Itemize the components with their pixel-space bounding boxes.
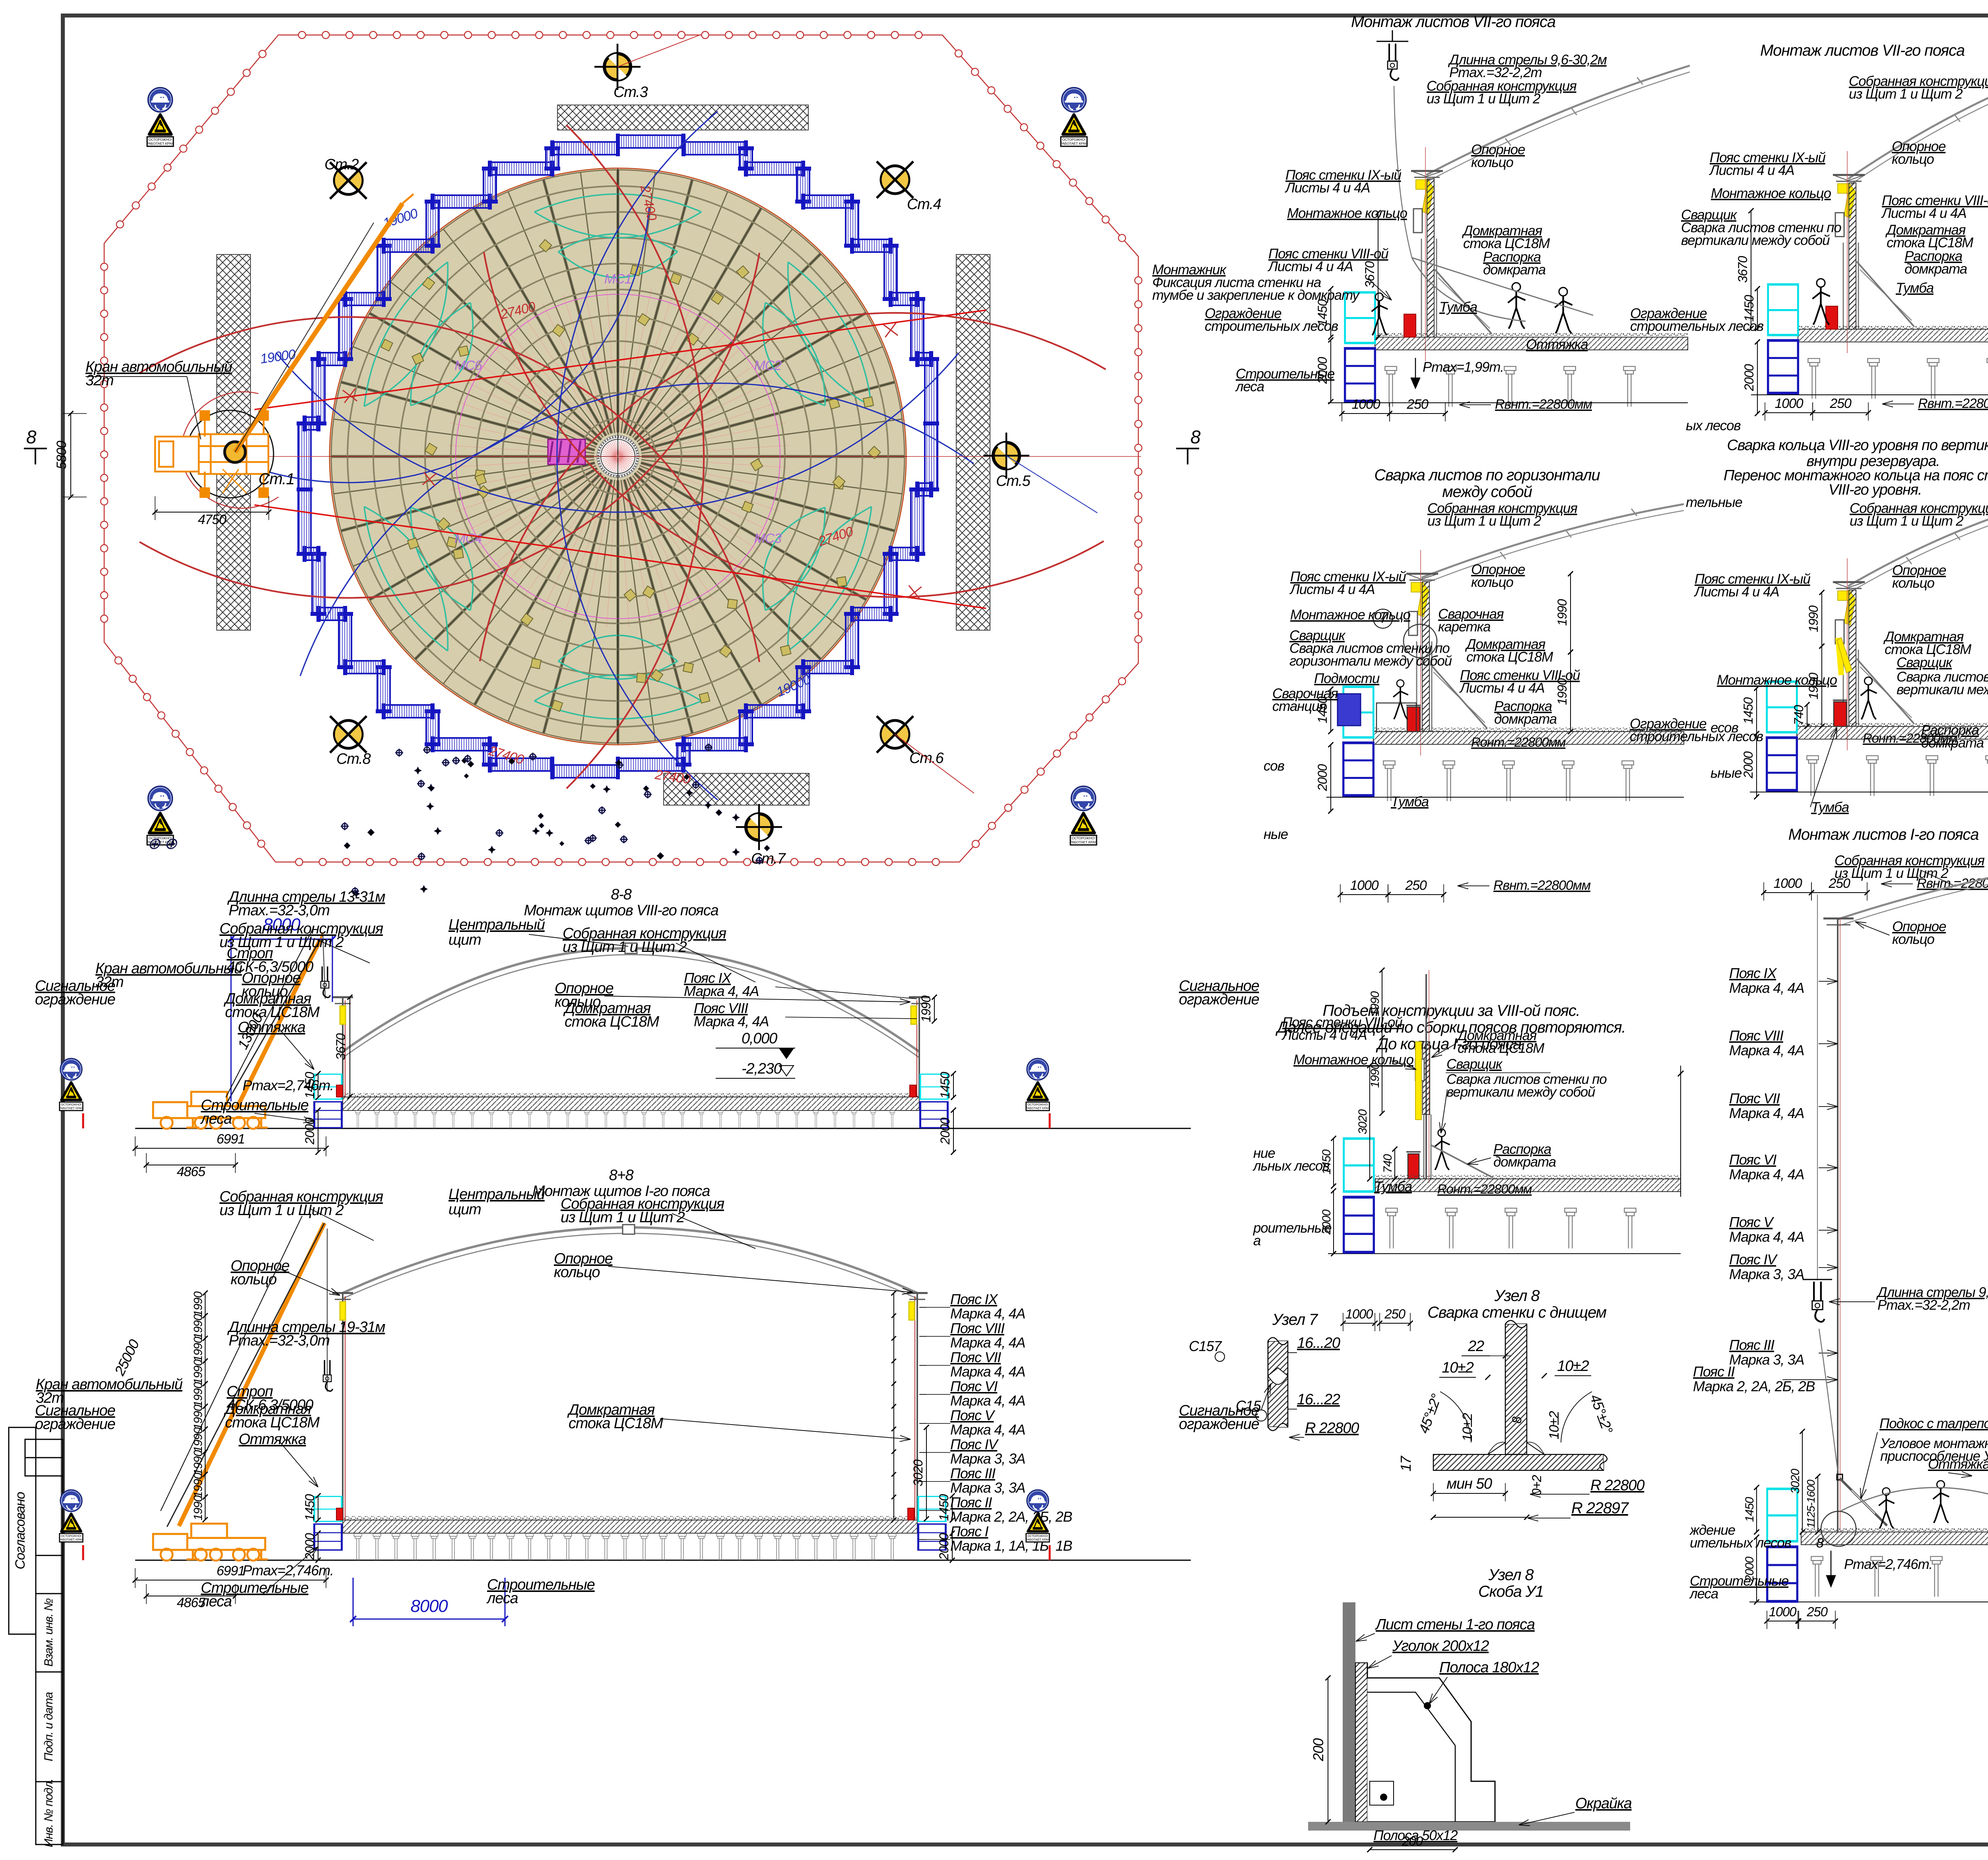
- svg-text:Pmax=2,746m.: Pmax=2,746m.: [243, 1077, 334, 1093]
- svg-text:домкрата: домкрата: [1493, 1154, 1556, 1170]
- svg-text:Лист стены 1-го пояса: Лист стены 1-го пояса: [1375, 1616, 1535, 1633]
- svg-text:есов: есов: [1710, 720, 1738, 736]
- svg-text:Сварка кольца VIII-го уровня п: Сварка кольца VIII-го уровня по вертикал…: [1727, 437, 1988, 454]
- svg-text:а: а: [1253, 1233, 1261, 1248]
- svg-text:Листы 4 и 4А: Листы 4 и 4А: [1459, 680, 1544, 696]
- svg-text:1450: 1450: [938, 1072, 952, 1099]
- svg-text:2000: 2000: [1315, 764, 1330, 791]
- svg-text:1990: 1990: [919, 995, 933, 1022]
- svg-text:1990: 1990: [192, 1359, 205, 1384]
- svg-text:7: 7: [1380, 610, 1389, 626]
- svg-text:Подп. и дата: Подп. и дата: [42, 1692, 55, 1761]
- svg-text:МС3: МС3: [754, 531, 782, 546]
- svg-text:Согласовано: Согласовано: [13, 1492, 28, 1569]
- svg-text:Листы 4 и 4А: Листы 4 и 4А: [1268, 259, 1353, 274]
- svg-text:Монтаж листов VII-го пояса: Монтаж листов VII-го пояса: [1351, 13, 1555, 31]
- svg-text:сов: сов: [1264, 758, 1285, 774]
- svg-text:4865: 4865: [177, 1164, 206, 1179]
- svg-text:леса: леса: [1689, 1586, 1718, 1602]
- svg-text:Марка 4, 4А: Марка 4, 4А: [950, 1421, 1025, 1438]
- svg-text:250: 250: [1829, 396, 1851, 411]
- svg-text:вертикали между собой: вертикали между собой: [1897, 682, 1988, 697]
- svg-text:8: 8: [1510, 1416, 1524, 1423]
- svg-text:⊕ ⊕: ⊕ ⊕: [147, 835, 177, 852]
- svg-text:из Щит 1 и Щит 2: из Щит 1 и Щит 2: [1427, 91, 1540, 107]
- svg-text:льных лесов: льных лесов: [1252, 1158, 1330, 1174]
- svg-text:Скоба У1: Скоба У1: [1478, 1583, 1543, 1600]
- svg-text:Пояс V: Пояс V: [1729, 1214, 1774, 1230]
- svg-text:10±2: 10±2: [1547, 1411, 1562, 1439]
- svg-text:Марка 4, 4А: Марка 4, 4А: [1729, 1166, 1804, 1182]
- svg-text:1000: 1000: [1345, 1307, 1373, 1321]
- svg-text:1450: 1450: [1320, 1149, 1333, 1175]
- svg-text:Листы 4 и 4А: Листы 4 и 4А: [1881, 206, 1966, 221]
- svg-text:Rвнт.=22800мм: Rвнт.=22800мм: [1918, 396, 1988, 411]
- svg-text:Пояс IV: Пояс IV: [1729, 1251, 1778, 1268]
- svg-text:строительных лесов: строительных лесов: [1630, 729, 1763, 744]
- svg-text:Пояс VI: Пояс VI: [950, 1378, 998, 1394]
- svg-text:кольцо: кольцо: [1892, 932, 1934, 947]
- svg-text:1450: 1450: [1742, 295, 1756, 322]
- svg-text:200: 200: [1310, 1738, 1326, 1762]
- svg-text:каретка: каретка: [1438, 619, 1491, 635]
- svg-text:Монтаж листов I-го пояса: Монтаж листов I-го пояса: [1788, 826, 1979, 843]
- svg-text:Полоса 180х12: Полоса 180х12: [1439, 1659, 1539, 1676]
- svg-text:R 22800: R 22800: [1305, 1420, 1359, 1437]
- svg-text:Пояс III: Пояс III: [1729, 1337, 1774, 1353]
- svg-text:8: 8: [1190, 427, 1201, 447]
- svg-text:Уголок 200х12: Уголок 200х12: [1392, 1638, 1489, 1654]
- svg-text:Сварщик: Сварщик: [1897, 655, 1953, 670]
- svg-text:кольцо: кольцо: [231, 1271, 276, 1288]
- svg-text:домкрата: домкрата: [1483, 262, 1546, 278]
- svg-text:8: 8: [26, 427, 37, 447]
- svg-text:Монтаж щитов VIII-го пояса: Монтаж щитов VIII-го пояса: [524, 902, 718, 919]
- svg-text:Pmax=2,746m.: Pmax=2,746m.: [1844, 1557, 1932, 1572]
- svg-text:из Щит 1 и Щит 2: из Щит 1 и Щит 2: [1849, 86, 1963, 102]
- svg-text:Марка 4, 4А: Марка 4, 4А: [1729, 1042, 1804, 1058]
- svg-text:1990: 1990: [1369, 1063, 1382, 1088]
- svg-text:Марка 4, 4А: Марка 4, 4А: [684, 983, 759, 999]
- svg-text:1990: 1990: [192, 1314, 205, 1339]
- svg-text:2000: 2000: [303, 1117, 317, 1145]
- svg-text:Марка 4, 4А: Марка 4, 4А: [950, 1305, 1025, 1322]
- svg-text:17: 17: [1398, 1455, 1414, 1472]
- svg-text:10±2: 10±2: [1442, 1359, 1474, 1376]
- svg-text:Марка 4, 4А: Марка 4, 4А: [1729, 1229, 1804, 1245]
- svg-text:Монтажное кольцо: Монтажное кольцо: [1293, 1052, 1413, 1068]
- svg-text:кольцо: кольцо: [554, 1264, 600, 1281]
- svg-text:Оттяжка: Оттяжка: [1526, 337, 1588, 352]
- svg-text:Пояс VI: Пояс VI: [1729, 1151, 1776, 1168]
- svg-text:леса: леса: [486, 1590, 518, 1607]
- svg-text:стока ЦС18М: стока ЦС18М: [1458, 1041, 1545, 1056]
- svg-text:2000: 2000: [1320, 1210, 1333, 1235]
- svg-text:200: 200: [1402, 1834, 1423, 1848]
- svg-text:вертикали между собой: вертикали между собой: [1446, 1084, 1595, 1100]
- svg-text:горизонтали между собой: горизонтали между собой: [1289, 653, 1452, 669]
- svg-text:Сварка листов по горизонтали: Сварка листов по горизонтали: [1374, 466, 1600, 484]
- svg-text:Пояс I: Пояс I: [950, 1523, 989, 1540]
- svg-text:Пояс VII: Пояс VII: [1729, 1090, 1780, 1107]
- svg-text:Марка 3, 3А: Марка 3, 3А: [1729, 1351, 1804, 1368]
- svg-text:Центральный: Центральный: [448, 1186, 545, 1203]
- svg-text:Rвнт.=22800мм: Rвнт.=22800мм: [1495, 397, 1592, 412]
- svg-text:8: 8: [1816, 1536, 1824, 1551]
- svg-text:1450: 1450: [1315, 299, 1330, 326]
- svg-text:Марка 3, 3А: Марка 3, 3А: [1729, 1266, 1804, 1282]
- svg-text:Пояс II: Пояс II: [950, 1494, 992, 1511]
- svg-text:740: 740: [1792, 705, 1806, 725]
- svg-text:32m: 32m: [36, 1390, 64, 1406]
- svg-text:леса: леса: [200, 1111, 232, 1127]
- svg-text:ых лесов: ых лесов: [1686, 418, 1741, 433]
- svg-text:домкрата: домкрата: [1905, 261, 1967, 277]
- svg-text:1450: 1450: [937, 1494, 951, 1521]
- svg-text:2000: 2000: [1742, 364, 1756, 391]
- svg-text:Инв. № подл.: Инв. № подл.: [42, 1779, 55, 1847]
- svg-text:Ст.7: Ст.7: [751, 850, 786, 867]
- svg-text:1000: 1000: [1769, 1604, 1797, 1619]
- svg-text:1450: 1450: [1743, 1497, 1756, 1522]
- svg-text:Подмости: Подмости: [1314, 671, 1380, 686]
- svg-text:1990: 1990: [192, 1337, 205, 1362]
- svg-text:кольцо: кольцо: [1471, 575, 1513, 590]
- svg-text:1990: 1990: [192, 1473, 205, 1498]
- svg-text:1990: 1990: [192, 1427, 205, 1452]
- svg-text:Пояс VIII: Пояс VIII: [1729, 1027, 1784, 1044]
- svg-text:ительных лесов: ительных лесов: [1690, 1535, 1791, 1551]
- svg-text:щит: щит: [448, 932, 481, 948]
- svg-text:250: 250: [1806, 1604, 1828, 1619]
- svg-text:Центральный: Центральный: [448, 916, 545, 933]
- svg-text:ьные: ьные: [1710, 765, 1742, 781]
- svg-text:Сварщик: Сварщик: [1446, 1056, 1503, 1072]
- svg-text:2000: 2000: [1315, 357, 1330, 384]
- svg-text:1450: 1450: [303, 1494, 317, 1521]
- svg-text:1990: 1990: [1369, 991, 1382, 1016]
- svg-text:стока ЦС18М: стока ЦС18М: [1466, 649, 1553, 665]
- svg-text:леса: леса: [200, 1593, 232, 1610]
- svg-text:250: 250: [1405, 878, 1427, 893]
- svg-text:1990: 1990: [1555, 678, 1569, 705]
- svg-text:1125-1600: 1125-1600: [1805, 1479, 1817, 1528]
- svg-text:3670: 3670: [334, 1033, 348, 1060]
- svg-text:1990: 1990: [1555, 599, 1569, 626]
- svg-text:Подкос с талрепом: Подкос с талрепом: [1879, 1416, 1988, 1431]
- svg-text:Rонт.=22800мм: Rонт.=22800мм: [1471, 735, 1566, 749]
- svg-text:Листы 4 и 4А: Листы 4 и 4А: [1694, 584, 1779, 600]
- svg-text:740: 740: [1381, 1154, 1394, 1173]
- svg-text:Узел 8: Узел 8: [1488, 1566, 1534, 1584]
- svg-text:8+8: 8+8: [609, 1167, 634, 1184]
- svg-text:из Щит 1 и Щит 2: из Щит 1 и Щит 2: [1427, 513, 1541, 529]
- svg-text:32m: 32m: [85, 372, 113, 389]
- svg-text:Марка 2, 2А, 2Б, 2В: Марка 2, 2А, 2Б, 2В: [1693, 1378, 1815, 1394]
- svg-text:стока ЦС18М: стока ЦС18М: [225, 1004, 320, 1021]
- svg-text:Rонт.=22800мм: Rонт.=22800мм: [1437, 1182, 1532, 1196]
- svg-text:Оттяжка: Оттяжка: [238, 1019, 305, 1036]
- svg-text:ные: ные: [1264, 827, 1288, 842]
- svg-text:Марка 4, 4А: Марка 4, 4А: [1729, 980, 1804, 996]
- svg-text:-2,230: -2,230: [742, 1060, 782, 1077]
- svg-text:Пояс IX: Пояс IX: [1729, 965, 1777, 981]
- svg-text:1990: 1990: [192, 1382, 205, 1407]
- svg-text:Марка 4, 4А: Марка 4, 4А: [950, 1363, 1025, 1380]
- svg-text:Марка 4, 4А: Марка 4, 4А: [950, 1334, 1025, 1351]
- svg-text:стока ЦС18М: стока ЦС18М: [565, 1013, 659, 1030]
- svg-text:Монтаж листов VII-го пояса: Монтаж листов VII-го пояса: [1760, 42, 1965, 59]
- svg-text:тельные: тельные: [1686, 495, 1742, 510]
- svg-text:Ст.5: Ст.5: [996, 473, 1031, 489]
- svg-text:С157: С157: [1189, 1338, 1222, 1354]
- svg-text:Взам. инв. №: Взам. инв. №: [42, 1598, 55, 1667]
- svg-text:2000: 2000: [938, 1117, 952, 1145]
- svg-text:Листы 4 и 4А: Листы 4 и 4А: [1289, 582, 1375, 597]
- svg-text:ограждение: ограждение: [1179, 991, 1259, 1008]
- svg-text:1000: 1000: [1350, 878, 1379, 893]
- svg-text:1450: 1450: [1741, 697, 1755, 724]
- svg-text:Оттяжка: Оттяжка: [239, 1431, 306, 1448]
- svg-text:2000: 2000: [303, 1533, 317, 1560]
- svg-text:Rонт.=22800мм: Rонт.=22800мм: [1863, 731, 1957, 746]
- svg-text:1450: 1450: [1315, 696, 1330, 723]
- svg-text:кольцо: кольцо: [1892, 575, 1934, 591]
- svg-text:1000: 1000: [1775, 396, 1804, 411]
- svg-text:Пояс IV: Пояс IV: [950, 1436, 999, 1452]
- svg-text:22: 22: [1468, 1338, 1484, 1355]
- svg-text:ограждение: ограждение: [1179, 1416, 1259, 1433]
- svg-text:Тумба: Тумба: [1896, 280, 1934, 296]
- svg-text:домкрата: домкрата: [1494, 711, 1557, 727]
- svg-text:1000: 1000: [1774, 876, 1802, 891]
- svg-text:R 22897: R 22897: [1571, 1499, 1629, 1517]
- svg-text:8-8: 8-8: [611, 886, 631, 903]
- svg-text:10±2: 10±2: [1460, 1413, 1475, 1441]
- svg-text:16...20: 16...20: [1297, 1335, 1340, 1351]
- svg-text:16...22: 16...22: [1297, 1391, 1340, 1408]
- svg-text:Pmax=2,746m.: Pmax=2,746m.: [243, 1562, 334, 1578]
- svg-text:3670: 3670: [1363, 261, 1377, 288]
- svg-text:250: 250: [1406, 397, 1428, 412]
- svg-text:стока ЦС18М: стока ЦС18М: [569, 1415, 663, 1432]
- svg-text:Пояс IX: Пояс IX: [950, 1291, 998, 1307]
- svg-text:Марка 1, 1А, 1Б, 1В: Марка 1, 1А, 1Б, 1В: [950, 1538, 1072, 1554]
- svg-text:вертикали между собой: вертикали между собой: [1681, 233, 1830, 248]
- svg-text:Монтажное кольцо: Монтажное кольцо: [1711, 186, 1831, 201]
- svg-text:ограждение: ограждение: [35, 1416, 115, 1433]
- svg-text:Монтажное кольцо: Монтажное кольцо: [1287, 206, 1407, 221]
- svg-text:1990: 1990: [192, 1405, 205, 1430]
- svg-text:Pmax.=32-2,2m: Pmax.=32-2,2m: [1877, 1297, 1970, 1313]
- svg-text:Окрайка: Окрайка: [1575, 1795, 1632, 1812]
- svg-text:3020: 3020: [1789, 1469, 1802, 1494]
- svg-text:Марка 3, 3А: Марка 3, 3А: [950, 1479, 1025, 1496]
- svg-text:Листы 4 и 4А: Листы 4 и 4А: [1281, 1027, 1367, 1043]
- svg-text:Pmax.=32-3,0m: Pmax.=32-3,0m: [229, 1332, 330, 1349]
- svg-text:Pmax.=32-3,0m: Pmax.=32-3,0m: [229, 902, 330, 919]
- svg-text:Ст.8: Ст.8: [336, 751, 371, 767]
- svg-text:Пояс III: Пояс III: [950, 1465, 996, 1481]
- svg-text:6991: 6991: [217, 1563, 245, 1578]
- svg-text:Ст.2: Ст.2: [324, 156, 359, 173]
- svg-text:Пояс V: Пояс V: [950, 1407, 996, 1423]
- svg-text:250: 250: [1384, 1307, 1406, 1321]
- svg-text:между собой: между собой: [1442, 483, 1532, 501]
- svg-text:Пояс II: Пояс II: [1693, 1363, 1735, 1380]
- svg-text:1990: 1990: [192, 1450, 205, 1475]
- svg-text:Тумба: Тумба: [1391, 794, 1429, 810]
- svg-text:Марка 4, 4А: Марка 4, 4А: [1729, 1105, 1804, 1121]
- svg-text:Тумба: Тумба: [1439, 299, 1477, 315]
- svg-text:из Щит 1 и Щит 2: из Щит 1 и Щит 2: [1850, 513, 1963, 529]
- svg-text:1990: 1990: [192, 1291, 205, 1316]
- svg-text:Pmax=1,99m.: Pmax=1,99m.: [1423, 359, 1504, 375]
- svg-text:МС2: МС2: [754, 358, 782, 373]
- svg-text:Листы 4 и 4А: Листы 4 и 4А: [1285, 180, 1370, 196]
- svg-text:Листы 4 и 4А: Листы 4 и 4А: [1709, 163, 1794, 178]
- svg-text:2000: 2000: [1741, 751, 1755, 779]
- svg-text:Узел 7: Узел 7: [1272, 1311, 1318, 1328]
- svg-text:Сварка стенки с днищем: Сварка стенки с днищем: [1427, 1304, 1607, 1321]
- svg-text:из Щит 1 и Щит 2: из Щит 1 и Щит 2: [561, 1209, 685, 1226]
- svg-text:стока ЦС18М: стока ЦС18М: [225, 1414, 320, 1431]
- svg-text:Ст.3: Ст.3: [613, 84, 648, 101]
- svg-text:ограждение: ограждение: [35, 991, 115, 1008]
- svg-text:из Щит 1 и Щит 2: из Щит 1 и Щит 2: [563, 939, 687, 955]
- svg-text:1990: 1990: [1806, 605, 1821, 632]
- svg-text:VIII-го уровня.: VIII-го уровня.: [1829, 482, 1922, 498]
- svg-text:Оттяжка: Оттяжка: [1928, 1456, 1988, 1472]
- svg-text:из Щит 1 и Щит 2: из Щит 1 и Щит 2: [1835, 866, 1948, 881]
- svg-text:0,000: 0,000: [742, 1030, 777, 1047]
- svg-text:1000: 1000: [1352, 397, 1380, 412]
- svg-text:леса: леса: [1235, 379, 1264, 394]
- svg-text:Тумба: Тумба: [1811, 800, 1849, 815]
- svg-text:МС6: МС6: [454, 358, 482, 373]
- svg-text:Марка 2, 2А, 2Б, 2В: Марка 2, 2А, 2Б, 2В: [950, 1509, 1072, 1525]
- svg-text:1990: 1990: [192, 1495, 205, 1520]
- svg-text:6991: 6991: [217, 1132, 245, 1147]
- svg-text:Ст.1: Ст.1: [258, 470, 294, 488]
- svg-text:1990: 1990: [1806, 672, 1821, 699]
- svg-text:щит: щит: [448, 1201, 481, 1218]
- svg-text:8000: 8000: [410, 1596, 448, 1616]
- svg-text:2000: 2000: [937, 1533, 951, 1560]
- svg-text:Марка 4, 4А: Марка 4, 4А: [950, 1392, 1025, 1409]
- svg-text:5800: 5800: [54, 441, 69, 469]
- svg-text:3670: 3670: [1736, 256, 1750, 283]
- svg-text:Пояс VII: Пояс VII: [950, 1349, 1001, 1365]
- svg-text:10±2: 10±2: [1557, 1358, 1589, 1375]
- svg-text:Узел 8: Узел 8: [1494, 1287, 1540, 1305]
- svg-text:3020: 3020: [911, 1459, 925, 1486]
- svg-text:Марка 4, 4А: Марка 4, 4А: [694, 1013, 769, 1029]
- svg-text:кольцо: кольцо: [1471, 155, 1513, 170]
- svg-text:Rвнт.=22800мм: Rвнт.=22800мм: [1493, 878, 1591, 893]
- svg-text:Марка 3, 3А: Марка 3, 3А: [950, 1450, 1025, 1467]
- svg-text:R 22800: R 22800: [1590, 1477, 1644, 1494]
- svg-text:Пояс VIII: Пояс VIII: [950, 1320, 1005, 1336]
- svg-text:32m: 32m: [95, 974, 123, 990]
- svg-text:4750: 4750: [198, 512, 227, 527]
- svg-text:кольцо: кольцо: [1892, 151, 1934, 167]
- svg-text:мин 50: мин 50: [1446, 1476, 1492, 1492]
- svg-text:Ст.4: Ст.4: [907, 196, 941, 213]
- svg-text:3020: 3020: [1356, 1109, 1369, 1134]
